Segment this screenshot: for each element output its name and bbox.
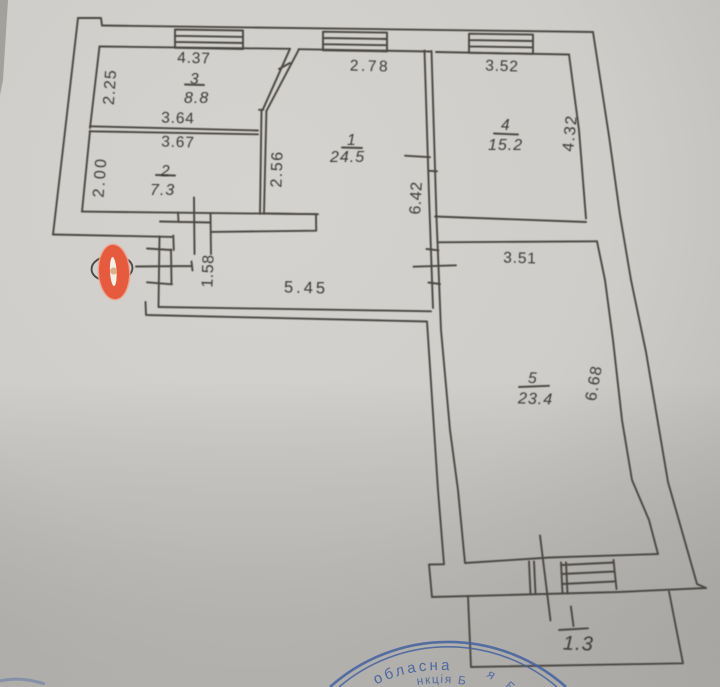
svg-text:2.25: 2.25 <box>101 69 120 106</box>
svg-text:нкція Б: нкція Б <box>416 672 469 687</box>
svg-text:3.52: 3.52 <box>485 57 519 75</box>
svg-text:7.3: 7.3 <box>150 182 175 199</box>
svg-text:24.5: 24.5 <box>329 149 365 166</box>
svg-text:8.8: 8.8 <box>184 90 209 107</box>
svg-text:1: 1 <box>347 132 356 149</box>
svg-text:3.51: 3.51 <box>503 250 537 268</box>
svg-text:5: 5 <box>528 370 538 387</box>
svg-text:3: 3 <box>190 71 199 88</box>
svg-text:1.58: 1.58 <box>199 254 217 288</box>
svg-text:2.00: 2.00 <box>91 156 111 198</box>
svg-text:2.56: 2.56 <box>268 150 286 188</box>
svg-text:1.3: 1.3 <box>563 633 595 656</box>
svg-text:6.42: 6.42 <box>407 181 426 215</box>
svg-text:2.78: 2.78 <box>350 57 391 75</box>
svg-text:23.4: 23.4 <box>517 390 554 408</box>
svg-text:4: 4 <box>501 117 510 134</box>
svg-text:4.37: 4.37 <box>177 50 211 68</box>
svg-text:3.64: 3.64 <box>161 110 195 128</box>
svg-text:5.45: 5.45 <box>284 278 329 297</box>
svg-text:3.67: 3.67 <box>161 133 195 151</box>
svg-text:15.2: 15.2 <box>488 137 523 154</box>
svg-text:2: 2 <box>160 163 170 180</box>
